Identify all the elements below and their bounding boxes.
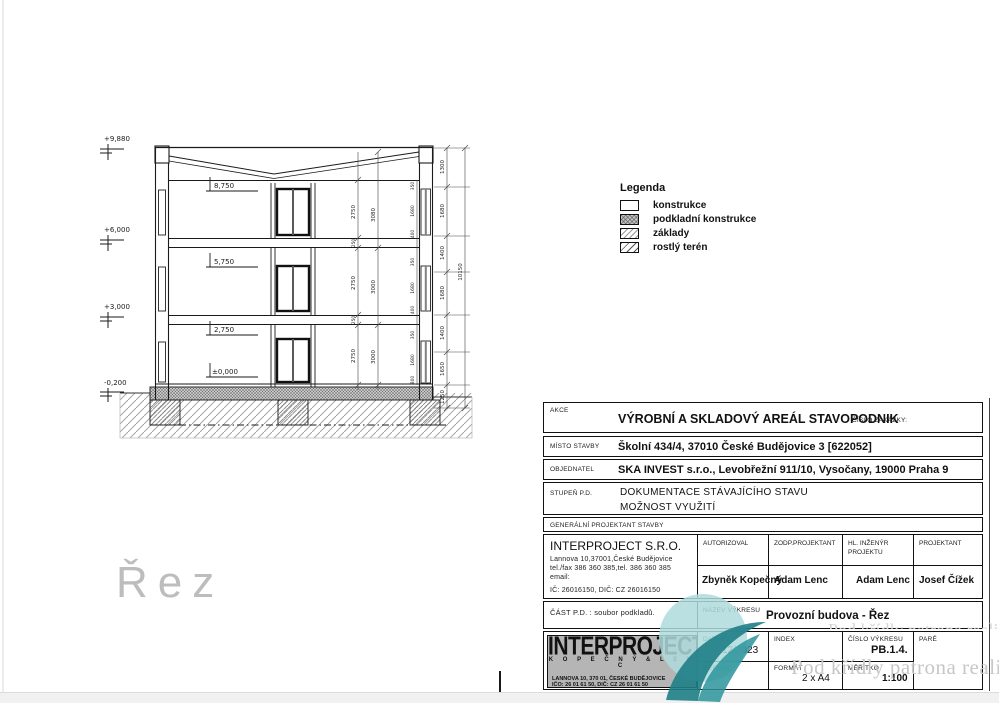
fold-mark <box>499 671 501 692</box>
interior-dim-labels: 2750 2750 2750 250 250 3080 3000 3000 <box>351 205 377 364</box>
svg-text:+9,880: +9,880 <box>104 135 130 143</box>
column-divider <box>697 535 698 598</box>
svg-text:800: 800 <box>410 376 416 385</box>
legend: Legenda konstrukce podkladní konstrukce … <box>620 182 756 254</box>
elevation-labels: +9,880 +6,000 +3,000 -0,200 <box>104 135 130 387</box>
watermark-text: Pod křídly patrona realit <box>791 655 999 680</box>
svg-text:2750: 2750 <box>351 349 357 363</box>
svg-text:3000: 3000 <box>371 350 377 364</box>
role-value-zodp-projektant: Adam Lenc <box>774 575 828 586</box>
svg-text:3080: 3080 <box>371 208 377 222</box>
titleblock-row-company-roles: INTERPROJECT S.R.O. Lannova 10,37001,Čes… <box>543 534 983 599</box>
svg-text:1680: 1680 <box>410 282 416 294</box>
svg-text:8,750: 8,750 <box>214 182 234 190</box>
titleblock-row-akce: AKCE VÝROBNÍ A SKLADOVÝ AREÁL STAVOPODNI… <box>543 402 983 433</box>
misto-stavby-label: MÍSTO STAVBY <box>550 443 599 450</box>
interproject-logo: INTERPROJECT K O P E Č N Ý & L E N C LAN… <box>547 635 697 688</box>
swatch-rostly-teren <box>620 242 639 253</box>
svg-text:400: 400 <box>410 230 416 239</box>
nazev-vykresu-label: NÁZEV VÝKRESU <box>703 607 760 614</box>
swatch-konstrukce <box>620 200 639 211</box>
datum-label: DATUM <box>703 636 727 643</box>
company-phone: tel./fax 386 360 385,tel. 386 360 385 <box>550 565 671 572</box>
level-flags <box>206 177 258 377</box>
svg-text:1400: 1400 <box>440 326 446 340</box>
svg-text:2750: 2750 <box>351 205 357 219</box>
column-divider <box>842 535 843 598</box>
svg-text:1250: 1250 <box>440 390 446 404</box>
drawing-sheet: 2750 2750 2750 250 250 3080 3000 3000 <box>0 0 999 703</box>
svg-text:350: 350 <box>410 182 416 191</box>
legend-item-podkladni: podkladní konstrukce <box>620 212 756 226</box>
logo-address: LANNOVA 10, 370 01, ČESKÉ BUDĚJOVICE IČO… <box>548 676 696 688</box>
role-value-projektant: Josef Čížek <box>919 575 974 586</box>
cislo-zakazky-label: ČÍSLO ZAKÁZKY: <box>852 417 907 424</box>
company-ic: IČ: 26016150, DIČ: CZ 26016150 <box>550 587 660 594</box>
titleblock-row-stupen: STUPEŇ P.D. DOKUMENTACE STÁVAJÍCÍHO STAV… <box>543 482 983 515</box>
svg-text:10150: 10150 <box>458 263 464 281</box>
role-label-zodp-projektant: ZODP.PROJEKTANT <box>774 540 836 547</box>
legend-item-label: rostlý terén <box>653 242 707 253</box>
svg-text:1650: 1650 <box>440 362 446 376</box>
role-value-hl-inzenyr: Adam Lenc <box>856 575 910 586</box>
stupen-label: STUPEŇ P.D. <box>550 490 592 497</box>
svg-text:1680: 1680 <box>440 286 446 300</box>
titleblock-row-objednatel: OBJEDNATEL SKA INVEST s.r.o., Levobřežní… <box>543 459 983 480</box>
logo-address-line2: IČO: 26 01 61 50, DIČ: CZ 26 01 61 50 <box>552 682 696 688</box>
svg-text:+3,000: +3,000 <box>104 303 130 311</box>
sheet-right-border <box>989 398 990 691</box>
legend-item-konstrukce: konstrukce <box>620 198 756 212</box>
legend-item-label: konstrukce <box>653 200 706 211</box>
roles-divider <box>697 565 982 566</box>
svg-text:1400: 1400 <box>440 246 446 260</box>
role-label-autorizoval: AUTORIZOVAL <box>703 540 748 547</box>
datum-value: 12/2023 <box>722 645 758 656</box>
role-label-projektant: PROJEKTANT <box>919 540 962 547</box>
company-email: email: <box>550 574 570 581</box>
column-divider <box>768 535 769 598</box>
stupen-value-2: MOŽNOST VYUŽITÍ <box>620 502 715 513</box>
legend-title: Legenda <box>620 182 756 194</box>
index-label: INDEX <box>774 636 795 643</box>
titleblock-row-misto: MÍSTO STAVBY Školní 434/4, 37010 České B… <box>543 436 983 457</box>
refcad-label: REF.CAD <box>703 665 732 672</box>
role-label-hl-inzenyr: HL. INŽENÝR <box>848 540 888 547</box>
svg-text:+6,000: +6,000 <box>104 226 130 234</box>
pare-label: PARÉ <box>919 636 937 643</box>
svg-text:1680: 1680 <box>410 354 416 366</box>
role-value-autorizoval: Zbyněk Kopečný <box>702 575 782 586</box>
page-bottom-edge <box>0 692 999 703</box>
svg-text:2750: 2750 <box>351 276 357 290</box>
cislo-vykresu-label: ČÍSLO VÝKRESU <box>848 636 903 643</box>
titleblock-row-genprojektant: GENERÁLNÍ PROJEKTANT STAVBY <box>543 517 983 532</box>
svg-text:5,750: 5,750 <box>214 258 234 266</box>
svg-text:2,750: 2,750 <box>214 326 234 334</box>
svg-text:1680: 1680 <box>440 204 446 218</box>
objednatel-label: OBJEDNATEL <box>550 466 594 473</box>
legend-item-teren: rostlý terén <box>620 240 756 254</box>
svg-text:250: 250 <box>351 239 357 248</box>
legend-item-label: podkladní konstrukce <box>653 214 756 225</box>
interior-window-frames <box>277 189 309 382</box>
svg-text:250: 250 <box>351 316 357 325</box>
role-label-hl-inzenyr-2: PROJEKTU <box>848 549 883 556</box>
level-labels: 8,750 5,750 2,750 ±0,000 <box>212 182 238 376</box>
svg-text:1680: 1680 <box>410 205 416 217</box>
swatch-zaklady <box>620 228 639 239</box>
column-divider <box>697 602 698 628</box>
cast-pd-label: ČÁST P.D. : soubor podkladů. <box>550 608 655 617</box>
logo-wordmark: INTERPROJECT <box>548 635 696 660</box>
svg-text:±0,000: ±0,000 <box>212 368 238 376</box>
right-dim-labels: 350 1680 400 350 1680 400 350 1680 800 1… <box>410 160 464 404</box>
subbase-strip <box>150 387 433 400</box>
svg-text:1300: 1300 <box>440 160 446 174</box>
svg-text:400: 400 <box>410 306 416 315</box>
legend-item-zaklady: základy <box>620 226 756 240</box>
misto-stavby-value: Školní 434/4, 37010 České Budějovice 3 [… <box>618 441 872 453</box>
svg-text:-0,200: -0,200 <box>104 379 127 387</box>
stupen-value-1: DOKUMENTACE STÁVAJÍCÍHO STAVU <box>620 487 808 498</box>
svg-text:350: 350 <box>410 258 416 267</box>
gen-projektant-label: GENERÁLNÍ PROJEKTANT STAVBY <box>550 522 664 529</box>
elevation-markers <box>100 144 124 402</box>
legend-item-label: základy <box>653 228 689 239</box>
objednatel-value: SKA INVEST s.r.o., Levobřežní 911/10, Vy… <box>618 464 948 476</box>
column-divider <box>913 535 914 598</box>
svg-text:3000: 3000 <box>371 280 377 294</box>
akce-label: AKCE <box>550 407 569 414</box>
interior-dim-lines <box>355 149 381 390</box>
swatch-podkladni-konstrukce <box>620 214 639 225</box>
company-name: INTERPROJECT S.R.O. <box>550 539 681 553</box>
company-address: Lannova 10,37001,České Budějovice <box>550 556 673 563</box>
svg-text:350: 350 <box>410 331 416 340</box>
section-title-watermark: Řez <box>116 558 224 608</box>
watermark-text-faint: Pod křídly patrona realit <box>828 620 999 629</box>
